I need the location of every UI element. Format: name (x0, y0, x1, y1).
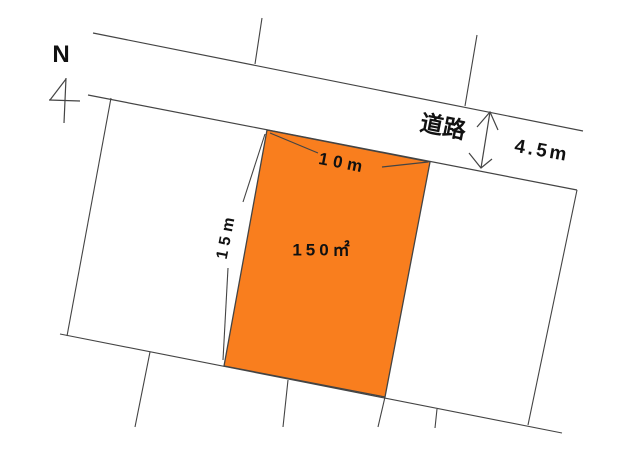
road-upper-edge (93, 33, 583, 131)
boundary-right-parcel (528, 190, 577, 425)
boundary-above-road-left (255, 18, 262, 64)
plot-polygon (224, 130, 430, 397)
boundary-rear-tick-3 (378, 397, 385, 427)
road-width-arrow (469, 112, 498, 168)
boundary-rear-tick-4 (435, 409, 437, 428)
boundary-rear-tick-1 (135, 352, 150, 427)
road-width-arrowhead-bottom (469, 153, 492, 168)
north-label: N (52, 43, 69, 67)
boundary-above-road-right (465, 35, 477, 106)
site-plan-diagram: N 道路 4.5m 10m 15m 150㎡ (0, 0, 640, 453)
boundary-rear-tick-2 (283, 380, 288, 427)
north-arrow-icon (49, 78, 80, 123)
site-plan-drawing (0, 0, 640, 453)
area-label: 150㎡ (292, 242, 353, 259)
boundary-left-parcel (67, 98, 111, 336)
